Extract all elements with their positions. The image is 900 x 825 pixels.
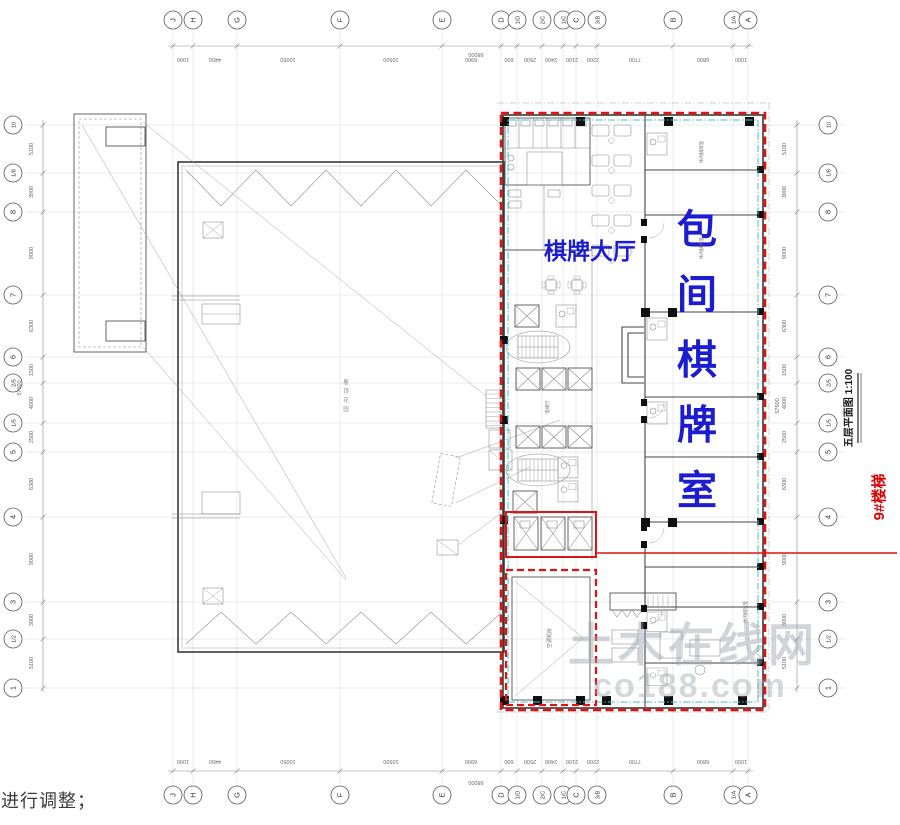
svg-text:1/5: 1/5 xyxy=(11,419,17,427)
svg-text:4: 4 xyxy=(8,515,17,519)
svg-text:1/D: 1/D xyxy=(515,16,521,25)
svg-text:7700: 7700 xyxy=(629,56,641,62)
svg-text:5100: 5100 xyxy=(29,657,35,669)
svg-text:6300: 6300 xyxy=(782,320,788,332)
svg-text:A: A xyxy=(743,17,752,22)
label-acroom: 空调机房 xyxy=(546,628,553,648)
svg-text:2400: 2400 xyxy=(545,758,557,764)
svg-text:1500: 1500 xyxy=(29,364,35,376)
label-leisure2: 休闲棋牌室 xyxy=(698,236,705,259)
svg-text:5: 5 xyxy=(823,450,832,454)
svg-text:1/C: 1/C xyxy=(561,791,567,800)
annotation-labels: 棋牌大厅包间棋牌室9#楼梯五层平面图 1:100屋顶花园空调机房电梯厅休闲棋牌室… xyxy=(343,140,888,705)
svg-text:1/C: 1/C xyxy=(561,16,567,25)
label-roof: 顶 xyxy=(343,388,349,395)
svg-text:1000: 1000 xyxy=(177,758,189,764)
svg-text:4: 4 xyxy=(823,515,832,519)
svg-text:J: J xyxy=(168,793,177,797)
svg-text:2200: 2200 xyxy=(587,758,599,764)
svg-text:1/A: 1/A xyxy=(731,16,737,25)
svg-text:2500: 2500 xyxy=(782,431,788,443)
svg-text:10: 10 xyxy=(11,122,17,128)
columns xyxy=(500,117,764,705)
svg-text:1/2: 1/2 xyxy=(826,635,832,643)
svg-text:1/8: 1/8 xyxy=(11,169,17,177)
label-leisure1: 休闲棋牌室 xyxy=(698,140,705,163)
svg-text:H: H xyxy=(188,17,197,22)
svg-text:4450: 4450 xyxy=(209,56,221,62)
svg-text:2400: 2400 xyxy=(545,56,557,62)
bottom-note: 进行调整； xyxy=(1,787,96,813)
svg-text:57600: 57600 xyxy=(775,398,781,413)
label-elevhall: 电梯厅 xyxy=(544,400,551,414)
svg-text:4450: 4450 xyxy=(209,758,221,764)
label-hall: 棋牌大厅 xyxy=(544,238,636,264)
svg-text:8: 8 xyxy=(823,210,832,214)
label-roof: 花 xyxy=(343,396,349,404)
svg-text:1000: 1000 xyxy=(177,56,189,62)
svg-text:1/8: 1/8 xyxy=(826,169,832,177)
svg-text:E: E xyxy=(437,792,446,797)
svg-text:10050: 10050 xyxy=(280,758,295,764)
svg-text:3/B: 3/B xyxy=(595,791,601,800)
svg-text:6300: 6300 xyxy=(782,478,788,490)
svg-text:5100: 5100 xyxy=(782,143,788,155)
svg-text:4000: 4000 xyxy=(782,397,788,409)
floorplan-screenshot: JJHHGGFFEEDD1/D1/D2/C2/C1/C1/CCC3/B3/BBB… xyxy=(0,0,900,825)
svg-text:B: B xyxy=(668,17,677,22)
svg-text:10: 10 xyxy=(826,122,832,128)
svg-text:3/B: 3/B xyxy=(595,16,601,25)
label-roof: 屋 xyxy=(343,379,349,386)
svg-text:3: 3 xyxy=(823,600,832,604)
svg-text:9000: 9000 xyxy=(29,247,35,259)
svg-text:6800: 6800 xyxy=(697,56,709,62)
svg-text:7: 7 xyxy=(8,293,17,297)
label-wm2: co188.com xyxy=(593,667,787,705)
label-private: 室 xyxy=(677,469,717,513)
label-title: 五层平面图 1:100 xyxy=(843,368,855,447)
svg-text:1/A: 1/A xyxy=(731,791,737,800)
svg-text:2500: 2500 xyxy=(29,431,35,443)
svg-text:5: 5 xyxy=(8,450,17,454)
svg-text:1: 1 xyxy=(8,686,17,690)
svg-text:G: G xyxy=(232,792,241,798)
svg-text:C: C xyxy=(571,17,580,23)
svg-text:5100: 5100 xyxy=(29,143,35,155)
svg-text:C: C xyxy=(571,792,580,798)
svg-text:9000: 9000 xyxy=(782,247,788,259)
svg-text:600: 600 xyxy=(504,758,513,764)
svg-text:58000: 58000 xyxy=(468,51,483,57)
svg-text:6900: 6900 xyxy=(465,758,477,764)
svg-text:3: 3 xyxy=(8,600,17,604)
svg-text:1/5: 1/5 xyxy=(826,419,832,427)
svg-text:F: F xyxy=(335,792,344,797)
svg-text:7700: 7700 xyxy=(629,758,641,764)
svg-text:F: F xyxy=(335,17,344,22)
svg-text:1/D: 1/D xyxy=(515,791,521,800)
svg-text:1500: 1500 xyxy=(782,364,788,376)
floor-plan-drawing: JJHHGGFFEEDD1/D1/D2/C2/C1/C1/CCC3/B3/BBB… xyxy=(0,0,900,825)
label-stair: 9#楼梯 xyxy=(870,474,888,521)
svg-text:1/2: 1/2 xyxy=(11,635,17,643)
svg-text:A: A xyxy=(743,792,752,797)
svg-text:D: D xyxy=(496,792,505,798)
title-underline xyxy=(858,373,861,443)
svg-text:7: 7 xyxy=(823,293,832,297)
svg-text:E: E xyxy=(437,17,446,22)
label-roof: 园 xyxy=(343,406,349,413)
svg-text:6: 6 xyxy=(8,355,17,359)
svg-text:58000: 58000 xyxy=(468,779,483,785)
svg-text:10500: 10500 xyxy=(383,56,398,62)
svg-text:2200: 2200 xyxy=(587,56,599,62)
svg-text:B: B xyxy=(668,792,677,797)
svg-text:2/C: 2/C xyxy=(540,16,546,25)
svg-text:10500: 10500 xyxy=(383,758,398,764)
svg-text:D: D xyxy=(496,17,505,23)
svg-text:3900: 3900 xyxy=(29,186,35,198)
label-private: 间 xyxy=(677,273,717,317)
svg-text:H: H xyxy=(188,792,197,797)
svg-text:9000: 9000 xyxy=(29,553,35,565)
svg-text:2/C: 2/C xyxy=(540,791,546,800)
svg-text:8: 8 xyxy=(8,210,17,214)
svg-text:2500: 2500 xyxy=(524,56,536,62)
svg-text:1: 1 xyxy=(823,686,832,690)
svg-text:G: G xyxy=(232,17,241,23)
svg-text:6300: 6300 xyxy=(29,320,35,332)
label-private: 牌 xyxy=(677,404,717,448)
svg-text:J: J xyxy=(168,18,177,22)
svg-text:6800: 6800 xyxy=(697,758,709,764)
svg-text:2/5: 2/5 xyxy=(826,379,832,387)
svg-text:1000: 1000 xyxy=(735,56,747,62)
svg-text:1000: 1000 xyxy=(735,758,747,764)
svg-text:4000: 4000 xyxy=(29,397,35,409)
svg-text:3900: 3900 xyxy=(782,186,788,198)
svg-text:600: 600 xyxy=(504,56,513,62)
svg-text:2100: 2100 xyxy=(566,758,578,764)
svg-text:6300: 6300 xyxy=(29,478,35,490)
svg-text:2500: 2500 xyxy=(524,758,536,764)
label-wm1: 土木在线网 xyxy=(568,619,818,671)
label-private: 棋 xyxy=(677,338,717,382)
svg-text:3900: 3900 xyxy=(29,614,35,626)
svg-text:2100: 2100 xyxy=(566,56,578,62)
svg-text:57600: 57600 xyxy=(17,380,23,395)
svg-text:9000: 9000 xyxy=(782,553,788,565)
svg-text:6: 6 xyxy=(823,355,832,359)
label-private: 包 xyxy=(677,208,717,252)
svg-text:10050: 10050 xyxy=(280,56,295,62)
